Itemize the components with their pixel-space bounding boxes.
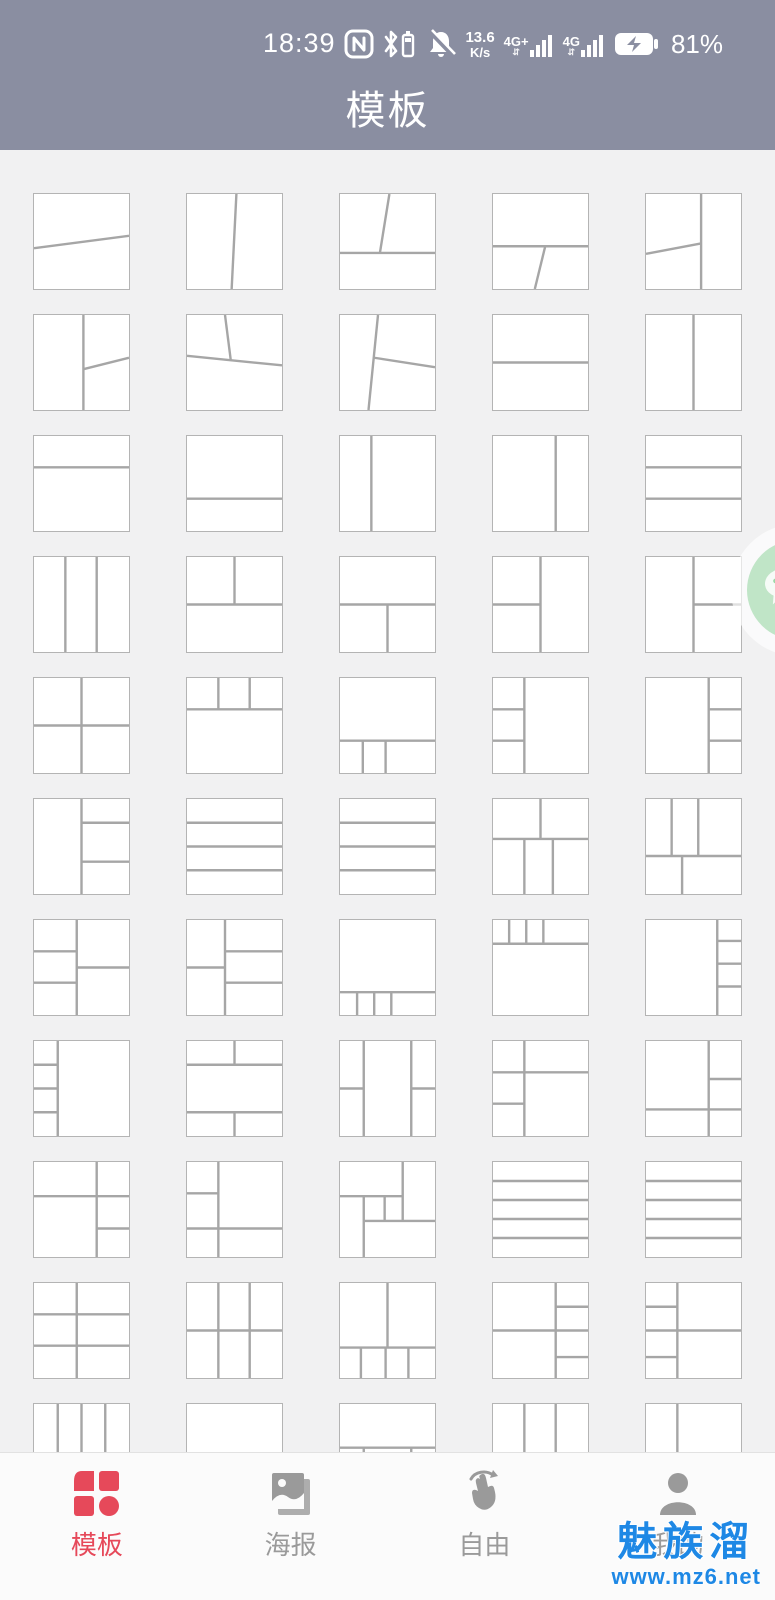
template-thumbnail[interactable] [339, 798, 436, 895]
signal-bars-icon [530, 31, 554, 57]
template-thumbnail[interactable] [492, 556, 589, 653]
template-thumbnail[interactable] [33, 798, 130, 895]
template-thumbnail[interactable] [645, 435, 742, 532]
nav-label: 我的 [652, 1525, 704, 1562]
template-thumbnail[interactable] [339, 919, 436, 1016]
template-thumbnail[interactable] [33, 314, 130, 411]
status-icons: 13.6 K/s 4G+ ⇵ [344, 24, 723, 64]
template-thumbnail[interactable] [645, 1040, 742, 1137]
nav-item-mine[interactable]: 我的 [581, 1453, 775, 1600]
template-thumbnail[interactable] [339, 677, 436, 774]
wechat-icon [761, 564, 775, 616]
template-thumbnail[interactable] [492, 1282, 589, 1379]
template-thumbnail[interactable] [492, 919, 589, 1016]
battery-charging-icon [614, 30, 660, 58]
template-thumbnail[interactable] [645, 1403, 742, 1452]
page-title: 模板 [0, 66, 775, 136]
template-thumbnail[interactable] [339, 1282, 436, 1379]
template-thumbnail[interactable] [645, 919, 742, 1016]
template-grid [0, 150, 775, 1452]
mute-bell-icon [426, 29, 456, 59]
template-thumbnail[interactable] [186, 1161, 283, 1258]
nfc-icon [344, 29, 374, 59]
signal-bars-icon [581, 31, 605, 57]
template-thumbnail[interactable] [339, 1403, 436, 1452]
bottom-nav: 模板 海报 自由 我的 [0, 1452, 775, 1600]
template-grid-icon [72, 1469, 122, 1519]
template-thumbnail[interactable] [33, 193, 130, 290]
template-thumbnail[interactable] [33, 1040, 130, 1137]
signal-group-primary: 4G+ ⇵ [504, 31, 554, 57]
template-thumbnail[interactable] [33, 1161, 130, 1258]
template-thumbnail[interactable] [186, 314, 283, 411]
template-thumbnail[interactable] [186, 798, 283, 895]
template-thumbnail[interactable] [33, 677, 130, 774]
template-thumbnail[interactable] [645, 798, 742, 895]
poster-photo-icon [266, 1469, 316, 1519]
template-thumbnail[interactable] [339, 193, 436, 290]
bluetooth-battery-icon [383, 29, 417, 59]
template-thumbnail[interactable] [186, 193, 283, 290]
template-thumbnail[interactable] [186, 556, 283, 653]
template-thumbnail[interactable] [645, 1161, 742, 1258]
template-thumbnail[interactable] [339, 1040, 436, 1137]
wechat-float-button[interactable] [731, 524, 775, 656]
status-time: 18:39 [263, 28, 336, 59]
template-thumbnail[interactable] [645, 193, 742, 290]
updown-arrows-icon: ⇵ [568, 48, 576, 57]
network-speed: 13.6 K/s [465, 30, 494, 59]
template-thumbnail[interactable] [186, 1040, 283, 1137]
template-thumbnail[interactable] [33, 919, 130, 1016]
nav-item-free[interactable]: 自由 [388, 1453, 582, 1600]
template-thumbnail[interactable] [492, 1040, 589, 1137]
signal-group-secondary: 4G ⇵ [563, 31, 605, 57]
template-thumbnail[interactable] [492, 314, 589, 411]
status-bar: 18:39 [0, 0, 775, 66]
template-thumbnail[interactable] [645, 677, 742, 774]
template-thumbnail[interactable] [492, 798, 589, 895]
speed-value: 13.6 [465, 30, 494, 45]
template-thumbnail[interactable] [339, 556, 436, 653]
template-thumbnail[interactable] [33, 1282, 130, 1379]
template-thumbnail[interactable] [339, 314, 436, 411]
template-thumbnail[interactable] [492, 677, 589, 774]
profile-person-icon [653, 1469, 703, 1519]
free-gesture-icon [459, 1469, 509, 1519]
template-thumbnail[interactable] [186, 919, 283, 1016]
template-thumbnail[interactable] [33, 1403, 130, 1452]
template-thumbnail[interactable] [339, 435, 436, 532]
template-thumbnail[interactable] [186, 1403, 283, 1452]
nav-label: 模板 [71, 1525, 123, 1562]
app-screen: 18:39 [0, 0, 775, 1600]
template-thumbnail[interactable] [186, 435, 283, 532]
template-thumbnail[interactable] [33, 556, 130, 653]
speed-unit: K/s [470, 46, 490, 59]
nav-item-template[interactable]: 模板 [0, 1453, 194, 1600]
template-thumbnail[interactable] [645, 556, 742, 653]
nav-label: 自由 [458, 1525, 510, 1562]
template-thumbnail[interactable] [339, 1161, 436, 1258]
template-thumbnail[interactable] [492, 1403, 589, 1452]
nav-item-poster[interactable]: 海报 [194, 1453, 388, 1600]
nav-label: 海报 [265, 1525, 317, 1562]
template-thumbnail[interactable] [186, 677, 283, 774]
template-thumbnail[interactable] [186, 1282, 283, 1379]
template-thumbnail[interactable] [645, 314, 742, 411]
updown-arrows-icon: ⇵ [512, 48, 520, 57]
app-header: 18:39 [0, 0, 775, 150]
template-thumbnail[interactable] [33, 435, 130, 532]
template-thumbnail[interactable] [645, 1282, 742, 1379]
battery-percent: 81% [671, 29, 723, 60]
template-thumbnail[interactable] [492, 193, 589, 290]
template-thumbnail[interactable] [492, 1161, 589, 1258]
template-thumbnail[interactable] [492, 435, 589, 532]
